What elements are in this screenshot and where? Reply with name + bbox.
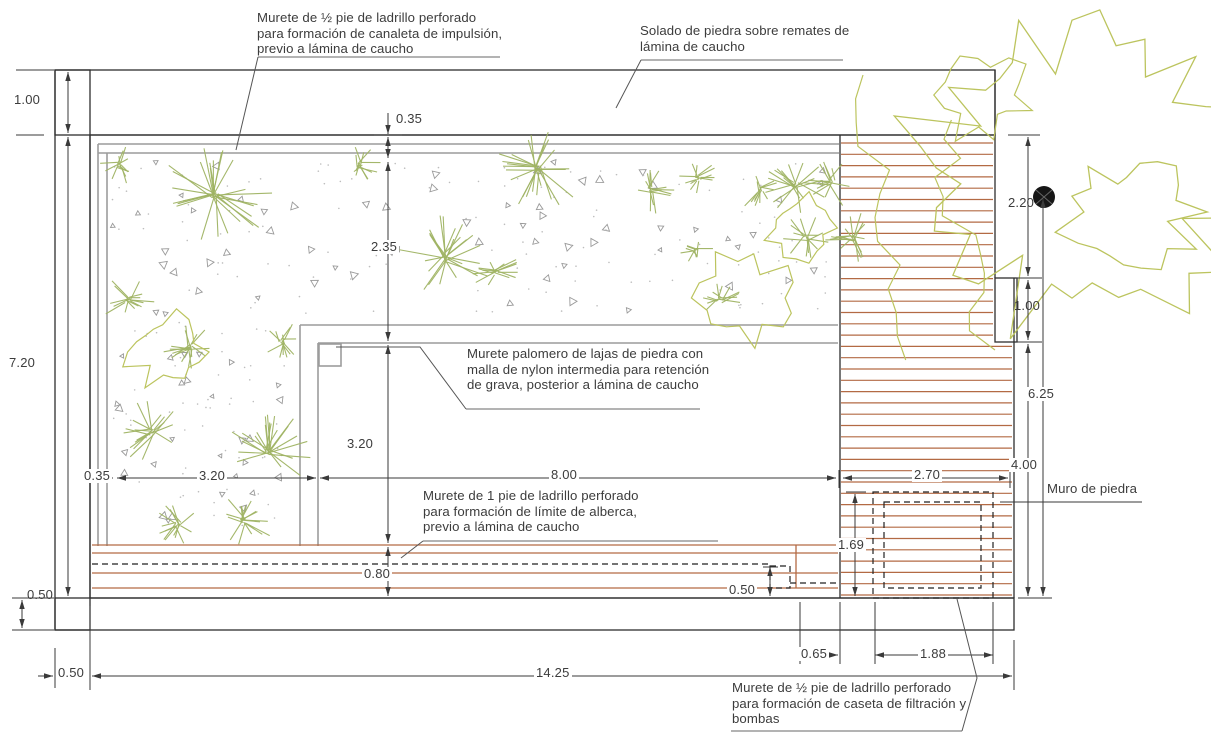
note-canaleta: Murete de ½ pie de ladrillo perforado pa… <box>257 10 502 57</box>
dim-caseta-offset: 0.65 <box>799 647 829 661</box>
dim-interior-width: 14.25 <box>534 666 572 680</box>
dim-wall-top: 1.00 <box>14 93 40 107</box>
note-limite: Murete de 1 pie de ladrillo perforado pa… <box>423 488 639 535</box>
dim-wall-bottom: 0.50 <box>27 588 53 602</box>
note-palomero: Murete palomero de lajas de piedra con m… <box>467 346 709 393</box>
dim-beach-width: 0.80 <box>362 567 392 581</box>
pool-plan-drawing: Murete de ½ pie de ladrillo perforado pa… <box>0 0 1211 737</box>
dim-wall-left: 0.50 <box>56 666 86 680</box>
note-muro-piedra: Muro de piedra <box>1047 481 1137 497</box>
note-caseta: Murete de ½ pie de ladrillo perforado pa… <box>732 680 966 727</box>
dim-caseta-depth: 1.69 <box>836 538 866 552</box>
dim-tree-offset-top: 2.20 <box>1008 196 1034 210</box>
beach-strip <box>92 545 838 588</box>
canaleta-lines <box>98 144 839 546</box>
dim-interior-height: 7.20 <box>9 356 35 370</box>
dim-wall-opening: 1.00 <box>1014 299 1040 313</box>
caseta-dashed <box>873 492 993 598</box>
dim-stone-wall-length: 4.00 <box>1009 458 1039 472</box>
dim-pool-width: 8.00 <box>549 468 579 482</box>
dim-caseta-width: 1.88 <box>918 647 948 661</box>
dim-deck-width: 2.70 <box>912 468 942 482</box>
dim-pool-side: 3.20 <box>347 437 373 451</box>
dim-bed-mid-height: 2.35 <box>369 240 399 254</box>
dim-step: 0.50 <box>727 583 757 597</box>
note-solado: Solado de piedra sobre remates de lámina… <box>640 23 849 54</box>
tree-trunk <box>1033 186 1055 208</box>
deck-boards <box>841 143 1012 595</box>
dim-bed-margin: 0.35 <box>82 469 112 483</box>
dim-canaleta-width: 0.35 <box>394 112 424 126</box>
dim-bed-width: 3.20 <box>197 469 227 483</box>
dim-tree-to-wall: 6.25 <box>1026 387 1056 401</box>
